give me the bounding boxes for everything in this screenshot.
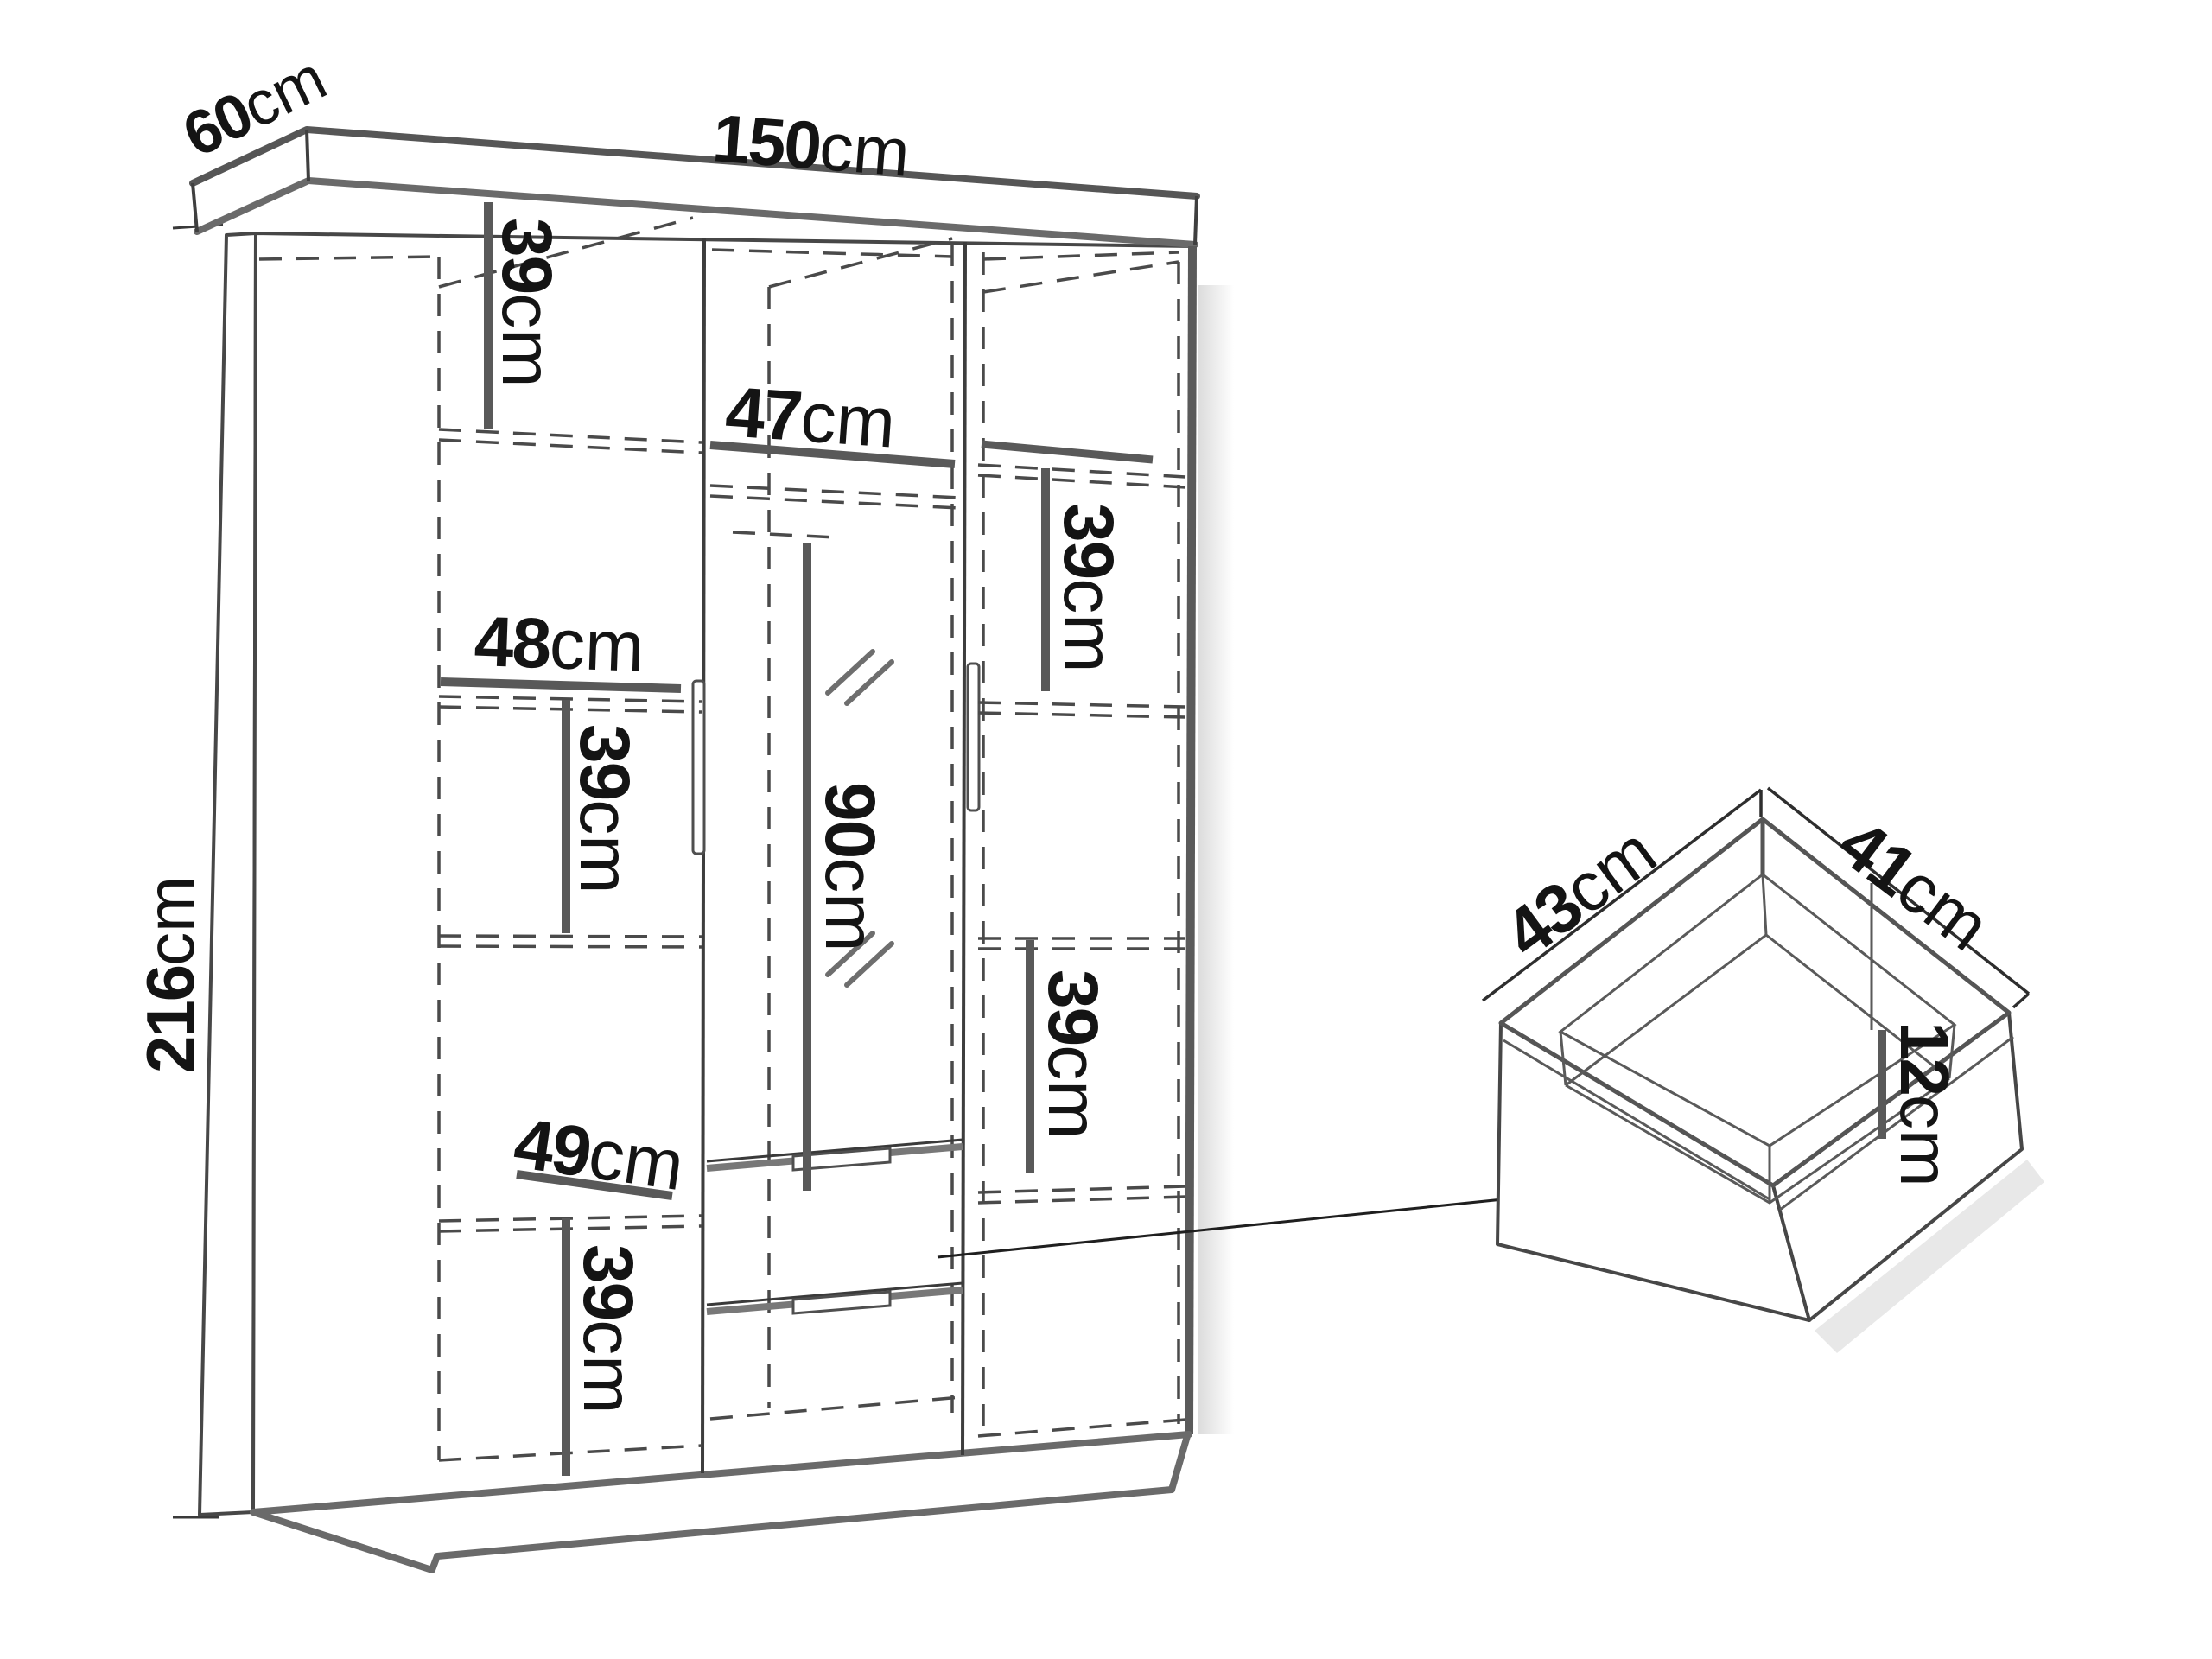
wardrobe-dimensions-diagram: 60cm 150cm 216cm 39cm 48cm 39cm 49cm 39c… [0, 0, 2212, 1659]
wardrobe-front-view [173, 130, 1197, 1570]
label-drawer-height: 12cm [1886, 1021, 1963, 1187]
door-handle-right [968, 664, 979, 810]
label-right-lower-shelf: 39cm [1033, 969, 1112, 1140]
label-drawer-depth: 41cm [1825, 804, 2004, 964]
side-panel-face [200, 233, 256, 1515]
wardrobe-top-panel [193, 130, 1197, 245]
dimension-label-height: 216cm [132, 876, 208, 1073]
top-panel-corner-edge [307, 130, 308, 181]
wardrobe-front-face [253, 233, 1192, 1512]
diagram-canvas: 60cm 150cm 216cm 39cm 48cm 39cm 49cm 39c… [0, 0, 2212, 1659]
label-right-upper-shelf: 39cm [1049, 503, 1128, 673]
dim-tick-right [2013, 994, 2029, 1007]
drawer-inner-edge-back [1763, 874, 1766, 935]
label-middle-width: 47cm [723, 372, 898, 462]
wardrobe-shadow [1198, 285, 1234, 1434]
drawer-front-panel [1497, 1023, 1809, 1320]
label-left-top-shelf: 39cm [487, 218, 566, 388]
dimension-label-width: 150cm [710, 99, 912, 191]
door-handle-left [693, 681, 704, 854]
label-middle-hanging: 90cm [810, 782, 889, 952]
door-divider-left [702, 238, 704, 1473]
label-left-middle-shelf: 39cm [565, 724, 644, 894]
wardrobe-right-edge [1189, 246, 1192, 1434]
top-panel-right-edge [1195, 196, 1197, 245]
label-left-bottom-shelf: 39cm [569, 1244, 647, 1414]
wardrobe-side-panel [173, 225, 256, 1517]
label-drawer-width: 43cm [1491, 812, 1669, 973]
label-left-upper-width: 48cm [473, 602, 645, 687]
